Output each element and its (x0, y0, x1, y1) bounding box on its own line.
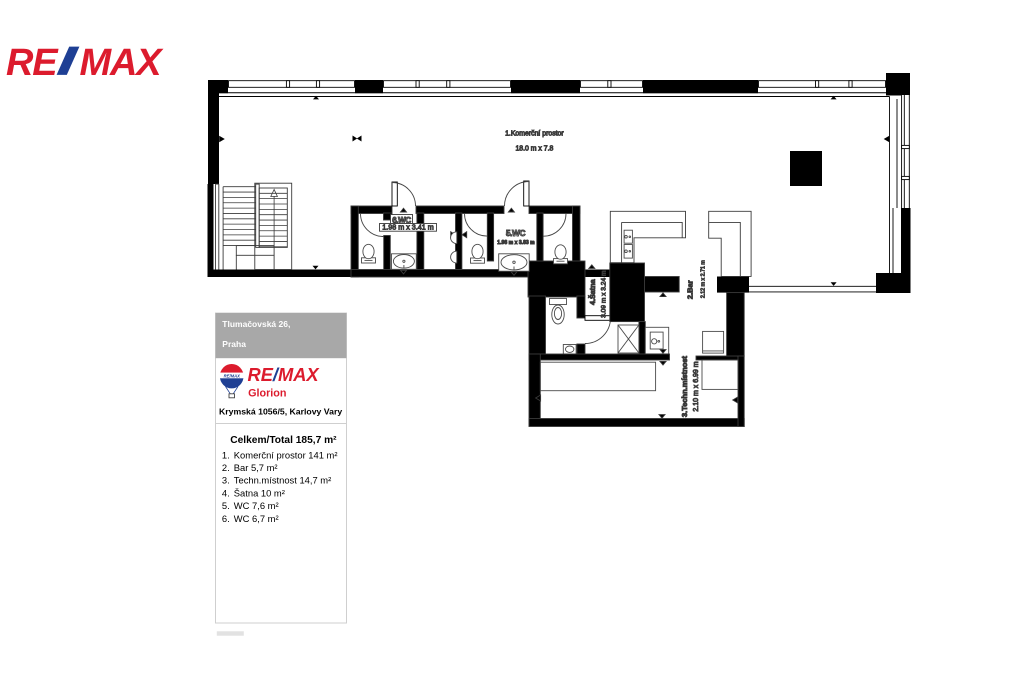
svg-text:Krymská 1056/5, Karlovy Vary: Krymská 1056/5, Karlovy Vary (219, 406, 342, 416)
svg-text:6.: 6. (222, 513, 230, 524)
svg-text:Komerční prostor 141 m²: Komerční prostor 141 m² (234, 449, 338, 460)
svg-text:2.: 2. (222, 462, 230, 473)
svg-text:Bar 5,7 m²: Bar 5,7 m² (234, 462, 278, 473)
svg-text:Glorion: Glorion (248, 388, 286, 400)
svg-text:4.: 4. (222, 487, 230, 498)
svg-text:1.: 1. (222, 449, 230, 460)
svg-text:3.: 3. (222, 475, 230, 486)
svg-text:Šatna 10 m²: Šatna 10 m² (234, 487, 285, 498)
svg-text:5.: 5. (222, 500, 230, 511)
svg-text:Techn.místnost 14,7 m²: Techn.místnost 14,7 m² (234, 475, 331, 486)
svg-text:WC 7,6 m²: WC 7,6 m² (234, 500, 279, 511)
svg-text:WC 6,7 m²: WC 6,7 m² (234, 513, 279, 524)
svg-text:RE/MAX: RE/MAX (224, 373, 240, 378)
svg-text:Tlumačovská 26,: Tlumačovská 26, (222, 319, 290, 329)
svg-text:RE/MAX: RE/MAX (248, 364, 321, 385)
svg-text:Celkem/Total 185,7 m²: Celkem/Total 185,7 m² (230, 435, 337, 446)
svg-text:Praha: Praha (222, 339, 246, 349)
